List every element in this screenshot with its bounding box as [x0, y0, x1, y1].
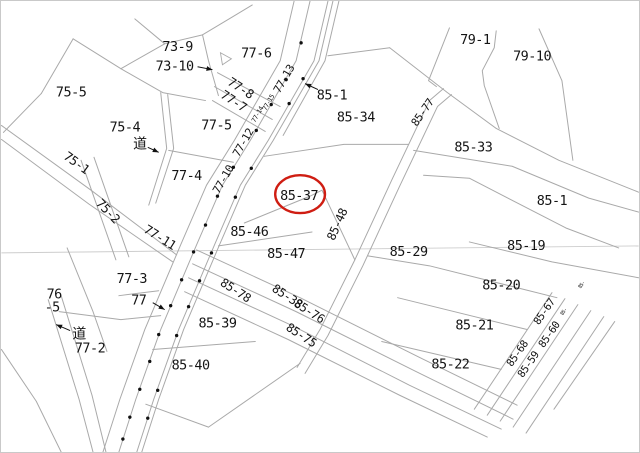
survey-point-dot: [299, 41, 302, 44]
survey-point-dot: [192, 250, 195, 253]
parcel-label: 85-20: [482, 279, 520, 294]
parcel-label: 85-33: [454, 140, 492, 155]
parcel-boundary-line: [208, 363, 300, 427]
parcel-boundary-line: [414, 150, 639, 212]
parcel-boundary-line: [539, 29, 573, 160]
parcel-label: 85-1: [537, 194, 568, 209]
parcel-label: 77-3: [117, 272, 148, 287]
parcel-label: 75-1: [61, 148, 92, 177]
parcel-boundary-line: [390, 48, 639, 192]
survey-point-dot: [198, 279, 201, 282]
parcel-label: 85-22: [431, 357, 469, 372]
parcel-boundary-line: [203, 5, 253, 35]
parcel-label: 85-34: [337, 110, 375, 125]
parcel-label: 85-: [559, 307, 568, 317]
label-leader-arrowhead: [305, 84, 311, 89]
parcel-label: 77-10: [210, 163, 236, 196]
parcel-label: 85-46: [230, 225, 268, 240]
parcel-label: 85-78: [218, 275, 254, 305]
parcel-label: 77-6: [241, 47, 272, 62]
parcel-label: 85-48: [324, 206, 351, 243]
label-leader-arrowhead: [152, 148, 158, 153]
parcel-label: 73-10: [156, 60, 194, 75]
survey-point-dot: [169, 304, 172, 307]
parcel-boundary-line: [189, 278, 502, 429]
parcel-boundary-line: [59, 312, 161, 320]
parcel-label: 85-29: [390, 245, 428, 260]
parcel-label: 85-77: [409, 96, 437, 128]
parcel-label: 85-21: [455, 319, 493, 334]
survey-point-dot: [255, 129, 258, 132]
parcel-label: -5: [45, 301, 61, 316]
parcel-label: 道: [133, 136, 147, 152]
parcel-boundary-line: [203, 35, 219, 96]
survey-point-dot: [138, 388, 141, 391]
survey-point-dot: [301, 77, 304, 80]
survey-point-dot: [157, 333, 160, 336]
parcel-boundary-line: [146, 404, 209, 427]
survey-point-dot: [234, 195, 237, 198]
parcel-boundary-line: [156, 95, 174, 204]
parcel-label: 77: [131, 294, 147, 309]
parcel-label: 75-5: [56, 86, 87, 101]
map-canvas[interactable]: 73-973-1077-675-577-877-777-575-4道77-137…: [1, 1, 639, 452]
parcel-label: 77-11: [141, 221, 179, 252]
survey-point-dot: [146, 416, 149, 419]
parcel-label: 85-1: [317, 89, 348, 104]
survey-point-dot: [250, 167, 253, 170]
survey-point-dot: [128, 415, 131, 418]
parcel-label: 85-47: [267, 247, 305, 262]
parcel-boundary-line: [526, 317, 604, 433]
survey-point-dot: [156, 389, 159, 392]
parcel-label: 77-2: [75, 341, 105, 356]
parcel-label: 85-: [577, 280, 586, 290]
survey-point-dot: [180, 278, 183, 281]
survey-point-dot: [175, 334, 178, 337]
parcel-label: 75-2: [93, 196, 123, 227]
parcel-boundary-line: [368, 256, 557, 298]
parcel-label: 77-5: [201, 118, 232, 133]
parcel-label: 85-19: [507, 239, 545, 254]
highlighted-parcel-label: 85-37: [280, 189, 318, 204]
parcel-boundary-line: [3, 94, 41, 133]
parcel-label: 85-39: [198, 317, 236, 332]
parcel-label: 75-4: [110, 120, 141, 135]
parcel-boundary-line: [1, 349, 61, 452]
parcel-boundary-line: [424, 175, 619, 248]
survey-point-dot: [121, 437, 124, 440]
parcel-label: 85-76: [291, 296, 327, 326]
parcel-label: 77-13: [271, 62, 297, 95]
parcel-label: 77-12: [230, 126, 256, 159]
parcel-label: 77-4: [171, 169, 202, 184]
parcel-boundary-line: [169, 150, 234, 162]
cadastral-map-window: 73-973-1077-675-577-877-777-575-4道77-137…: [0, 0, 640, 453]
parcel-label: 道: [72, 327, 86, 343]
small-parcel-triangle: [220, 53, 231, 65]
survey-point-dot: [148, 360, 151, 363]
parcel-label: 79-10: [513, 50, 551, 65]
survey-point-dot: [210, 251, 213, 254]
survey-point-dot: [187, 305, 190, 308]
parcel-label: 79-1: [460, 33, 491, 48]
survey-point-dot: [287, 102, 290, 105]
parcel-boundary-line: [135, 19, 165, 44]
parcel-label: 85-40: [172, 358, 210, 373]
parcel-boundary-line: [429, 28, 450, 87]
parcel-boundary-line: [328, 48, 390, 56]
survey-point-dot: [204, 223, 207, 226]
parcel-boundary-line: [554, 322, 615, 410]
parcel-label: 73-9: [162, 40, 193, 55]
parcel-boundary-line: [153, 341, 256, 349]
parcel-boundary-line: [1, 139, 172, 261]
parcel-boundary-line: [61, 296, 106, 452]
label-leader-arrowhead: [158, 305, 164, 310]
parcel-boundary-line: [264, 144, 408, 156]
